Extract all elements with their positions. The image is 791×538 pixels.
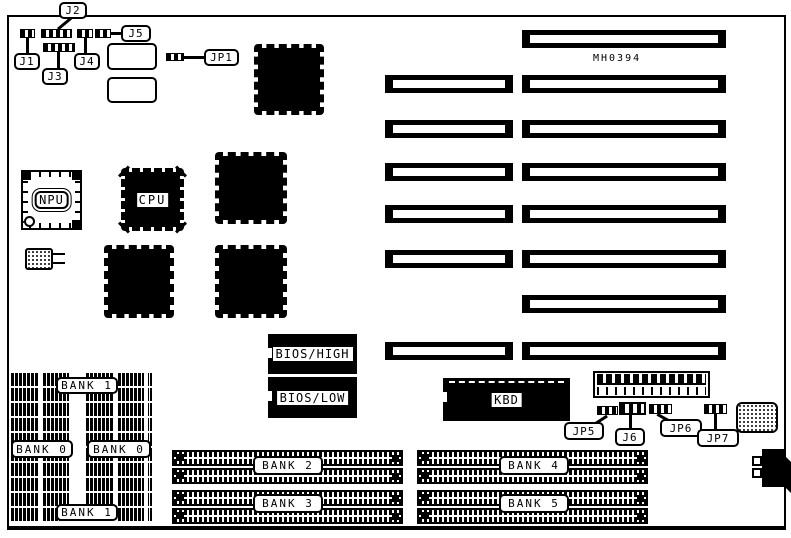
label-j2: J2 (59, 2, 87, 19)
label-bank1-top: BANK 1 (56, 377, 118, 394)
kbd-socket-mark (449, 381, 564, 383)
leader-j3 (57, 52, 60, 69)
label-jp7: JP7 (697, 429, 739, 447)
chipset-chip-a (215, 152, 287, 224)
speaker-component (736, 402, 778, 433)
label-j3-text: J3 (47, 70, 62, 83)
npu-socket: NPU (21, 170, 82, 230)
label-j5-text: J5 (128, 27, 143, 40)
isa-slot-3-long (522, 120, 726, 138)
chipset-chip-top (254, 44, 324, 115)
label-bank0-left: BANK 0 (11, 440, 73, 458)
label-j1-text: J1 (19, 55, 34, 68)
label-bank5: BANK 5 (499, 494, 569, 513)
leader-j4 (84, 38, 87, 54)
label-bank1-bottom: BANK 1 (56, 504, 118, 521)
isa-slot-4-long (522, 163, 726, 181)
kbd-label-text: KBD (494, 393, 519, 407)
kbd-controller-chip: KBD (443, 378, 570, 421)
kbd-label: KBD (491, 393, 522, 407)
jumper-jp1 (166, 53, 184, 61)
label-j2-text: J2 (65, 4, 80, 17)
label-bank2: BANK 2 (253, 456, 323, 475)
jumper-j4 (77, 29, 93, 38)
label-jp1-text: JP1 (210, 51, 233, 64)
bank0-left-text: BANK 0 (16, 443, 68, 456)
leader-jp7 (714, 413, 717, 430)
isa-slot-4-ext (385, 163, 513, 181)
leader-jp1 (183, 56, 204, 59)
bank0-right-text: BANK 0 (93, 443, 145, 456)
pin1-marker (24, 216, 35, 227)
label-bank0-right: BANK 0 (87, 440, 151, 458)
jumper-j3 (43, 43, 75, 52)
label-jp5: JP5 (564, 422, 604, 440)
label-jp6: JP6 (660, 419, 702, 437)
label-jp6-text: JP6 (670, 422, 693, 435)
socket-corner (72, 220, 80, 228)
kb-connector-pin (752, 456, 762, 466)
isa-slot-6-ext (385, 250, 513, 268)
label-bank4: BANK 4 (499, 456, 569, 475)
isa-slot-2-ext (385, 75, 513, 93)
bios-low-text: BIOS/LOW (280, 391, 346, 405)
label-jp1: JP1 (204, 49, 239, 66)
bank3-text: BANK 3 (262, 497, 314, 510)
bank2-text: BANK 2 (262, 459, 314, 472)
label-j4-text: J4 (79, 55, 94, 68)
isa-slot-8-long (522, 342, 726, 360)
crystal-oscillator (25, 248, 53, 270)
isa-slot-3-ext (385, 120, 513, 138)
jumper-jp5 (597, 406, 618, 415)
jumper-j2 (41, 29, 72, 38)
cpu-chip: CPU (121, 168, 184, 231)
bios-low-label: BIOS/LOW (277, 391, 349, 405)
isa-slot-5-long (522, 205, 726, 223)
kb-connector-pin (752, 468, 762, 478)
jumper-j6 (619, 402, 646, 415)
jumper-j1 (20, 29, 35, 38)
bank1-bottom-text: BANK 1 (61, 506, 113, 519)
leader-j6 (629, 414, 632, 429)
isa-slot-8-ext (385, 342, 513, 360)
isa-slot-2-long (522, 75, 726, 93)
label-jp5-text: JP5 (573, 425, 596, 438)
oscillator-lead (53, 253, 65, 255)
isa-slot-5-ext (385, 205, 513, 223)
label-j4: J4 (74, 53, 100, 70)
bank1-top-text: BANK 1 (61, 379, 113, 392)
label-j5: J5 (121, 25, 151, 42)
chipset-chip-b (104, 245, 174, 318)
oscillator-1 (107, 43, 157, 70)
label-jp7-text: JP7 (707, 432, 730, 445)
isa-slot-7-long (522, 295, 726, 313)
power-connector (593, 371, 710, 398)
oscillator-2 (107, 77, 157, 103)
bios-high-label: BIOS/HIGH (272, 347, 352, 361)
label-j6: J6 (615, 428, 645, 446)
cpu-label: CPU (137, 193, 169, 207)
label-j1: J1 (14, 53, 40, 70)
motherboard-diagram: J2 J1 J4 J3 J5 JP1 MH0394 NPU CPU (0, 0, 791, 538)
isa-slot-1-long (522, 30, 726, 48)
bank5-text: BANK 5 (508, 497, 560, 510)
npu-label: NPU (34, 191, 69, 209)
jumper-jp6 (649, 404, 672, 414)
chipset-chip-c (215, 245, 287, 318)
socket-corner (23, 172, 31, 180)
jumper-j5 (95, 29, 111, 38)
label-bank3: BANK 3 (253, 494, 323, 513)
label-j6-text: J6 (622, 431, 637, 444)
bios-high-text: BIOS/HIGH (275, 347, 349, 361)
keyboard-connector (762, 449, 786, 487)
socket-corner (72, 172, 80, 180)
oscillator-lead (53, 262, 65, 264)
label-j3: J3 (42, 68, 68, 85)
cpu-label-text: CPU (139, 193, 167, 207)
leader-j1 (26, 38, 29, 54)
bios-high-chip: BIOS/HIGH (268, 334, 357, 374)
npu-label-text: NPU (39, 193, 64, 207)
isa-slot-6-long (522, 250, 726, 268)
model-number: MH0394 (593, 53, 641, 64)
bios-low-chip: BIOS/LOW (268, 377, 357, 418)
bank4-text: BANK 4 (508, 459, 560, 472)
